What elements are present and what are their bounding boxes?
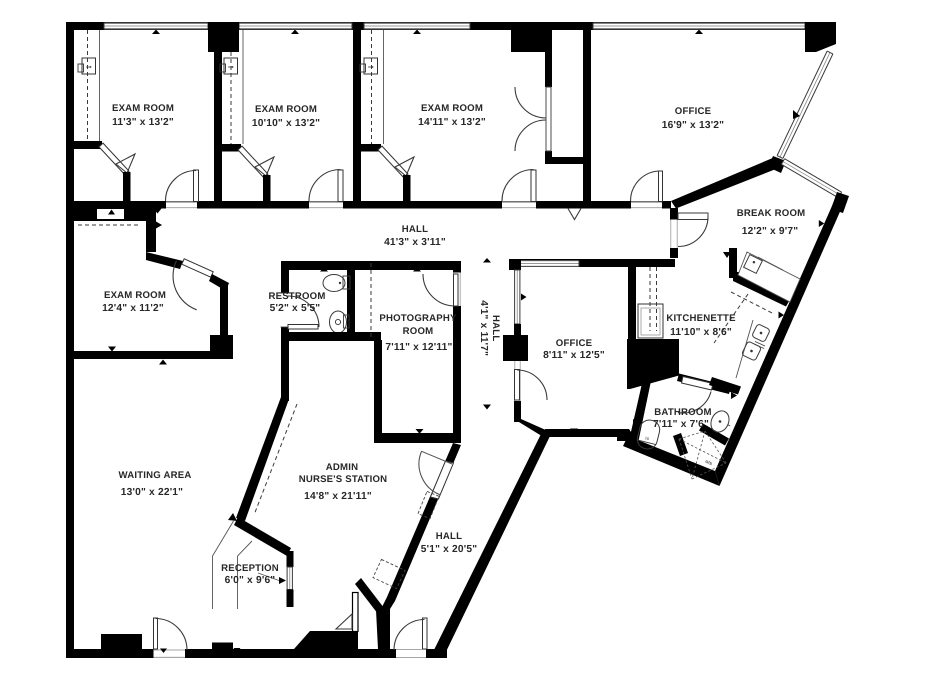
svg-text:41'3" x 3'11": 41'3" x 3'11" (384, 237, 446, 248)
svg-text:EXAM ROOM: EXAM ROOM (255, 104, 317, 115)
svg-text:EXAM ROOM: EXAM ROOM (104, 290, 166, 301)
svg-text:RESTROOM: RESTROOM (268, 291, 325, 302)
svg-text:10'10" x 13'2": 10'10" x 13'2" (252, 118, 320, 129)
svg-text:7'11" x 7'6": 7'11" x 7'6" (653, 419, 709, 430)
svg-text:WAITING AREA: WAITING AREA (119, 470, 192, 481)
svg-text:6'0" x 9'6": 6'0" x 9'6" (225, 575, 276, 586)
svg-text:5'1" x 20'5": 5'1" x 20'5" (421, 544, 478, 555)
svg-text:ADMIN: ADMIN (326, 462, 358, 473)
svg-text:KITCHENETTE: KITCHENETTE (666, 313, 736, 324)
svg-text:BATHROOM: BATHROOM (654, 407, 711, 418)
svg-text:HALL: HALL (436, 531, 462, 542)
svg-text:BREAK ROOM: BREAK ROOM (737, 208, 806, 219)
svg-text:16'9" x 13'2": 16'9" x 13'2" (662, 120, 724, 131)
svg-text:NURSE'S STATION: NURSE'S STATION (299, 474, 388, 485)
svg-text:EXAM ROOM: EXAM ROOM (421, 103, 483, 114)
svg-text:HALL: HALL (402, 224, 428, 235)
svg-text:EXAM ROOM: EXAM ROOM (112, 103, 174, 114)
svg-text:8'11" x 12'5": 8'11" x 12'5" (543, 350, 605, 361)
svg-text:13'0" x 22'1": 13'0" x 22'1" (121, 487, 183, 498)
svg-text:14'8" x 21'11": 14'8" x 21'11" (304, 491, 372, 502)
svg-text:OFFICE: OFFICE (556, 338, 593, 349)
svg-text:OFFICE: OFFICE (675, 106, 712, 117)
svg-text:11'10" x 8'6": 11'10" x 8'6" (670, 327, 732, 338)
svg-text:RECEPTION: RECEPTION (221, 563, 279, 574)
svg-text:5'2" x 5'5": 5'2" x 5'5" (270, 303, 321, 314)
svg-text:12'2" x 9'7": 12'2" x 9'7" (742, 226, 799, 237)
svg-text:ROOM: ROOM (403, 326, 434, 337)
svg-text:7'11" x 12'11": 7'11" x 12'11" (385, 342, 452, 353)
svg-text:4'1" x 11'7": 4'1" x 11'7" (478, 300, 489, 356)
svg-text:PHOTOGRAPHY: PHOTOGRAPHY (379, 313, 457, 324)
svg-text:12'4" x 11'2": 12'4" x 11'2" (102, 303, 164, 314)
svg-text:HALL: HALL (490, 315, 501, 341)
svg-text:14'11" x 13'2": 14'11" x 13'2" (418, 117, 486, 128)
svg-text:11'3" x 13'2": 11'3" x 13'2" (112, 117, 174, 128)
